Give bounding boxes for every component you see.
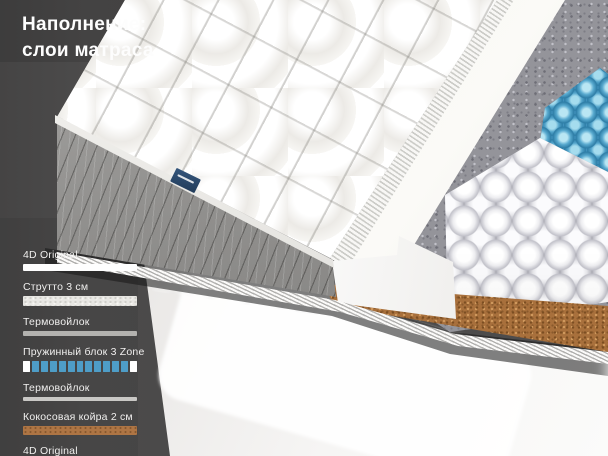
layers-legend: 4D Original Струтто 3 см Термовойлок Пру… [23, 249, 141, 456]
legend-item-label: 4D Original [23, 445, 141, 456]
spring-segment [130, 361, 137, 372]
product-scene: Наполнение:слои матраса 4D Original Стру… [0, 0, 608, 456]
legend-item-label: Кокосовая койра 2 см [23, 411, 141, 423]
page-title-line2: слои матраса [22, 38, 154, 64]
legend-item: Термовойлок [23, 316, 141, 336]
legend-item-swatch [23, 361, 137, 372]
spring-segment [50, 361, 57, 372]
page-title-line1: Наполнение: [22, 12, 154, 38]
legend-item: 4D Original [23, 445, 141, 456]
legend-item: Кокосовая койра 2 см [23, 411, 141, 435]
brand-logo-icon [177, 174, 194, 184]
spring-segment [121, 361, 128, 372]
spring-segment [23, 361, 30, 372]
legend-item: Пружинный блок 3 Zone [23, 346, 141, 372]
legend-item-label: Пружинный блок 3 Zone [23, 346, 141, 358]
legend-item-swatch [23, 331, 137, 336]
legend-item-label: Струтто 3 см [23, 281, 141, 293]
legend-item-swatch [23, 426, 137, 435]
page-title: Наполнение:слои матраса [22, 12, 154, 64]
spring-segment [94, 361, 101, 372]
legend-item: Струтто 3 см [23, 281, 141, 306]
legend-item-swatch [23, 397, 137, 401]
spring-segment [68, 361, 75, 372]
spring-segment [103, 361, 110, 372]
spring-segment [41, 361, 48, 372]
legend-item-label: Термовойлок [23, 316, 141, 328]
legend-item: 4D Original [23, 249, 141, 271]
spring-segment [85, 361, 92, 372]
spring-segment [112, 361, 119, 372]
legend-item-swatch [23, 264, 137, 271]
legend-item: Термовойлок [23, 382, 141, 401]
spring-segment [32, 361, 39, 372]
spring-segment [77, 361, 84, 372]
legend-item-label: 4D Original [23, 249, 141, 261]
spring-segment [59, 361, 66, 372]
legend-item-label: Термовойлок [23, 382, 141, 394]
legend-item-swatch [23, 296, 137, 306]
